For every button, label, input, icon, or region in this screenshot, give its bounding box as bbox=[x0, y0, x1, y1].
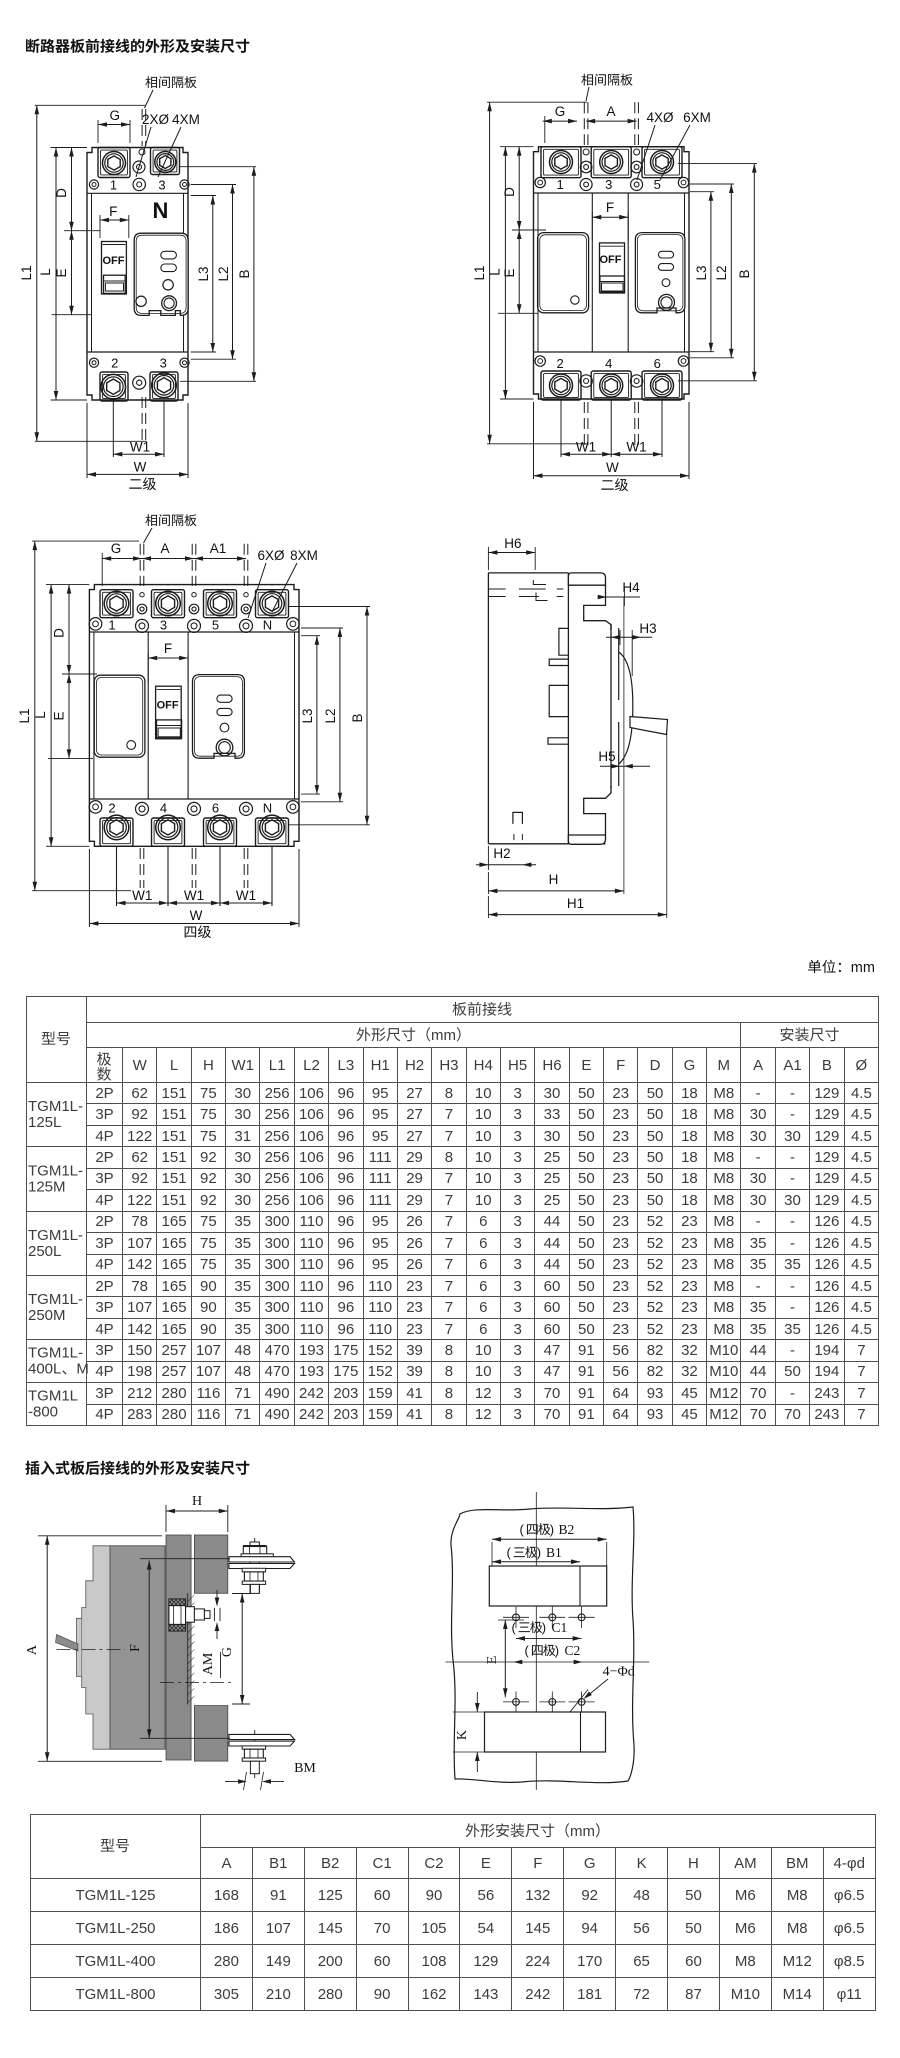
svg-text:C1: C1 bbox=[552, 1620, 568, 1635]
svg-text:L1: L1 bbox=[472, 265, 487, 280]
svg-text:5: 5 bbox=[654, 177, 661, 192]
svg-text:G: G bbox=[111, 541, 122, 556]
svg-text:(: ( bbox=[520, 1522, 525, 1537]
svg-text:L1: L1 bbox=[17, 708, 32, 723]
svg-text:W1: W1 bbox=[130, 440, 150, 455]
svg-text:TGM1L: TGM1L bbox=[28, 1388, 78, 1405]
svg-text:125M: 125M bbox=[28, 1179, 66, 1196]
svg-text:B1: B1 bbox=[546, 1545, 562, 1560]
svg-text:A: A bbox=[160, 541, 169, 556]
svg-text:3: 3 bbox=[158, 178, 165, 193]
svg-text:1: 1 bbox=[556, 177, 563, 192]
svg-text:3: 3 bbox=[160, 356, 167, 371]
svg-text:F: F bbox=[606, 200, 614, 215]
svg-text:B2: B2 bbox=[559, 1522, 575, 1537]
svg-text:TGM1L-: TGM1L- bbox=[28, 1345, 83, 1362]
svg-text:L3: L3 bbox=[694, 265, 709, 280]
svg-text:3: 3 bbox=[605, 177, 612, 192]
svg-text:): ) bbox=[555, 1643, 559, 1658]
svg-text:-800: -800 bbox=[28, 1404, 58, 1421]
svg-text:F: F bbox=[164, 641, 172, 656]
svg-text:4XM: 4XM bbox=[172, 112, 200, 127]
svg-text:B: B bbox=[737, 269, 752, 278]
svg-text:2: 2 bbox=[111, 356, 118, 371]
svg-text:2XØ: 2XØ bbox=[142, 112, 170, 127]
svg-text:N: N bbox=[153, 198, 169, 223]
svg-text:D: D bbox=[52, 628, 67, 638]
svg-text:TGM1L-: TGM1L- bbox=[28, 1163, 83, 1180]
svg-text:H: H bbox=[549, 872, 559, 887]
svg-text:6: 6 bbox=[654, 356, 661, 371]
svg-text:250M: 250M bbox=[28, 1307, 66, 1324]
svg-text:W1: W1 bbox=[626, 440, 646, 455]
svg-text:A: A bbox=[606, 104, 615, 119]
svg-text:L2: L2 bbox=[714, 265, 729, 280]
svg-text:L2: L2 bbox=[216, 266, 231, 281]
svg-text:TGM1L-: TGM1L- bbox=[28, 1098, 83, 1115]
svg-text:H2: H2 bbox=[493, 846, 510, 861]
svg-text:8XM: 8XM bbox=[290, 548, 318, 563]
svg-text:2: 2 bbox=[108, 801, 115, 816]
svg-text:TGM1L-: TGM1L- bbox=[28, 1291, 83, 1308]
svg-text:F: F bbox=[128, 1644, 143, 1652]
svg-text:E: E bbox=[52, 711, 67, 720]
svg-text:125L: 125L bbox=[28, 1114, 61, 1131]
svg-text:A1: A1 bbox=[210, 541, 227, 556]
svg-text:): ) bbox=[550, 1522, 554, 1537]
svg-text:4: 4 bbox=[605, 356, 612, 371]
svg-text:E: E bbox=[485, 1656, 500, 1665]
svg-text:(: ( bbox=[507, 1545, 512, 1560]
svg-text:(: ( bbox=[512, 1620, 517, 1635]
svg-text:D: D bbox=[502, 187, 517, 197]
svg-text:L3: L3 bbox=[196, 266, 211, 281]
svg-text:W1: W1 bbox=[184, 888, 204, 903]
svg-text:mm: mm bbox=[851, 960, 875, 976]
svg-text:N: N bbox=[263, 801, 272, 816]
svg-text:3: 3 bbox=[160, 618, 167, 633]
svg-text:(: ( bbox=[525, 1643, 530, 1658]
svg-text:K: K bbox=[455, 1730, 470, 1740]
svg-text:E: E bbox=[502, 268, 517, 277]
svg-text:W: W bbox=[134, 460, 147, 475]
svg-text:C2: C2 bbox=[565, 1643, 581, 1658]
svg-text:N: N bbox=[263, 618, 272, 633]
svg-text:H5: H5 bbox=[598, 749, 615, 764]
svg-text:L: L bbox=[33, 711, 48, 719]
svg-text:G: G bbox=[220, 1647, 235, 1657]
svg-text:H3: H3 bbox=[639, 621, 656, 636]
svg-text:5: 5 bbox=[212, 618, 219, 633]
svg-text:W1: W1 bbox=[132, 888, 152, 903]
svg-text:W1: W1 bbox=[576, 440, 596, 455]
svg-text:H6: H6 bbox=[504, 536, 521, 551]
svg-text:E: E bbox=[54, 268, 69, 277]
svg-text:W: W bbox=[606, 460, 619, 475]
svg-text:G: G bbox=[109, 108, 120, 123]
svg-text:400L: 400L bbox=[28, 1361, 61, 1378]
svg-text:H4: H4 bbox=[622, 580, 640, 595]
svg-text:L2: L2 bbox=[323, 708, 338, 723]
svg-text:OFF: OFF bbox=[600, 254, 622, 266]
svg-text:M: M bbox=[76, 1361, 89, 1378]
svg-text:1: 1 bbox=[110, 178, 117, 193]
svg-text:2: 2 bbox=[556, 356, 563, 371]
svg-text:4: 4 bbox=[160, 801, 167, 816]
svg-text:L: L bbox=[38, 268, 53, 276]
svg-text:OFF: OFF bbox=[157, 700, 179, 712]
svg-text:F: F bbox=[109, 204, 117, 219]
svg-text:mm: mm bbox=[431, 1027, 456, 1044]
svg-text:W: W bbox=[190, 908, 203, 923]
svg-text:W1: W1 bbox=[236, 888, 256, 903]
svg-text:BM: BM bbox=[294, 1761, 316, 1776]
svg-text:H: H bbox=[192, 1494, 202, 1509]
svg-text:1: 1 bbox=[108, 618, 115, 633]
svg-text:250L: 250L bbox=[28, 1243, 61, 1260]
svg-text:6XM: 6XM bbox=[683, 110, 711, 125]
svg-text:H1: H1 bbox=[567, 896, 584, 911]
svg-text:6XØ: 6XØ bbox=[257, 548, 285, 563]
svg-text:4XØ: 4XØ bbox=[646, 110, 674, 125]
svg-text:6: 6 bbox=[212, 801, 219, 816]
svg-text:4−Φd: 4−Φd bbox=[603, 1665, 635, 1680]
svg-text:): ) bbox=[537, 1545, 541, 1560]
svg-text:L: L bbox=[488, 268, 503, 276]
svg-text:A: A bbox=[25, 1644, 40, 1655]
svg-text:B: B bbox=[350, 713, 365, 722]
svg-text:mm: mm bbox=[570, 1823, 595, 1840]
svg-text:TGM1L-: TGM1L- bbox=[28, 1227, 83, 1244]
svg-text:OFF: OFF bbox=[103, 255, 125, 267]
svg-text:D: D bbox=[54, 188, 69, 198]
svg-text:AM: AM bbox=[201, 1652, 216, 1675]
svg-text:B: B bbox=[237, 269, 252, 278]
svg-text:L3: L3 bbox=[300, 708, 315, 723]
svg-text:): ) bbox=[542, 1620, 546, 1635]
svg-text:G: G bbox=[555, 104, 566, 119]
svg-text:L1: L1 bbox=[19, 265, 34, 280]
